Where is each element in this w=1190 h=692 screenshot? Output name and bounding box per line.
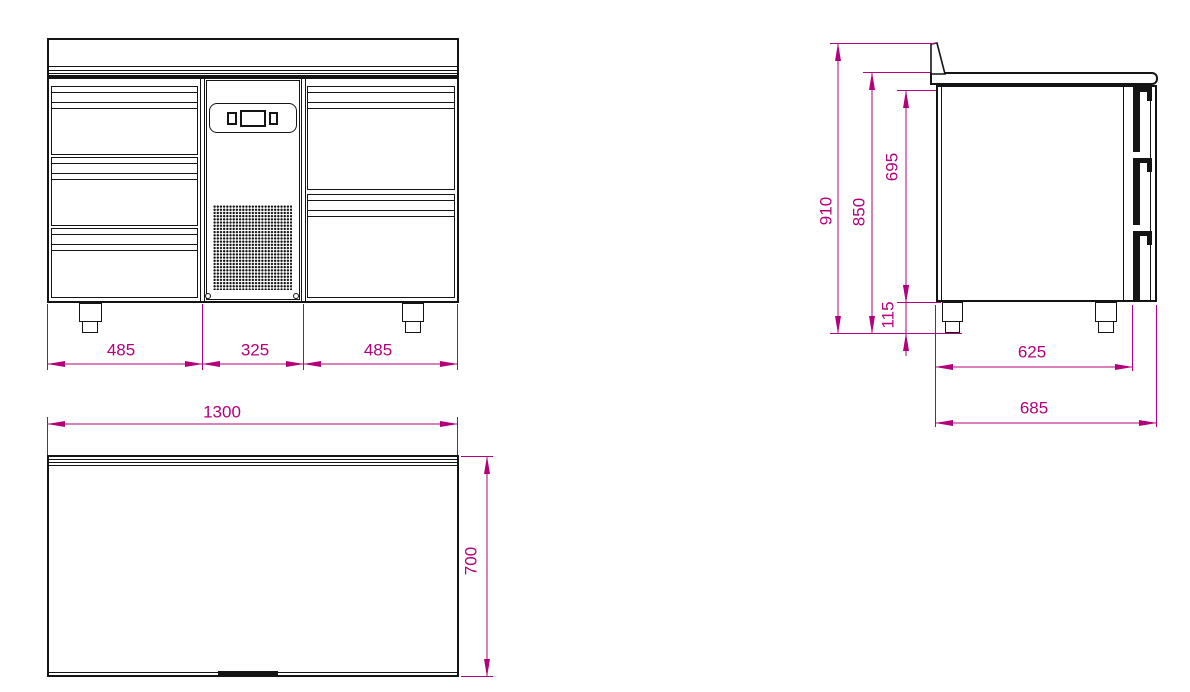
leg xyxy=(942,302,963,322)
dimension-label-total-height: 910 xyxy=(818,197,835,225)
side-upstand xyxy=(931,43,945,74)
drawer-handle xyxy=(52,235,197,245)
side-front-frame-line xyxy=(1150,87,1151,300)
control-button-right xyxy=(269,112,278,125)
handle-hook-icon xyxy=(1147,236,1152,245)
side-drawer-front xyxy=(1133,231,1140,300)
leg xyxy=(402,303,424,322)
column-divider xyxy=(200,79,201,301)
side-worktop xyxy=(930,72,1158,85)
front-worktop-edge-line xyxy=(49,70,457,71)
technical-drawing-canvas: 485 325 485 1300 700 910 850 695 115 625… xyxy=(0,0,1190,692)
front-worktop-edge-line xyxy=(49,73,457,74)
leg-foot xyxy=(82,321,98,333)
drawer-handle xyxy=(52,245,197,251)
dimension-label-middle-section: 325 xyxy=(241,342,269,359)
front-worktop-edge-line xyxy=(49,66,457,67)
leg xyxy=(1095,302,1117,322)
control-display xyxy=(240,110,266,127)
dimension-label-leg-height: 115 xyxy=(880,301,897,328)
screw-icon xyxy=(293,293,299,299)
drawer-front xyxy=(307,86,455,190)
dimension-label-total-depth-plan: 700 xyxy=(463,547,480,575)
handle-hook-icon xyxy=(1147,92,1152,101)
drawer-front xyxy=(51,86,198,155)
screw-icon xyxy=(205,293,211,299)
column-divider xyxy=(301,79,302,301)
leg-foot xyxy=(1098,321,1114,333)
drawer-handle xyxy=(308,93,454,103)
handle-hook-icon xyxy=(1147,163,1152,172)
side-drawer-front xyxy=(1133,158,1140,225)
control-button-left xyxy=(227,112,237,125)
dimension-label-drawer-section-height: 695 xyxy=(884,153,901,181)
drawer-handle xyxy=(52,93,197,103)
drawer-front xyxy=(51,157,198,226)
dimension-label-left-section: 485 xyxy=(107,342,135,359)
plan-outline xyxy=(47,455,459,677)
plan-rear-edge-line xyxy=(49,465,457,466)
plan-control-panel-mark xyxy=(218,671,278,676)
dimension-label-worktop-height: 850 xyxy=(851,198,868,226)
dimension-label-body-depth: 625 xyxy=(1018,344,1046,361)
leg-foot xyxy=(945,321,960,333)
drawer-handle xyxy=(52,164,197,174)
plan-rear-edge-line xyxy=(49,459,457,460)
side-rear-panel-line xyxy=(941,87,942,300)
side-front-frame-line xyxy=(1123,87,1124,300)
ventilation-grille xyxy=(213,205,292,290)
drawer-handle xyxy=(52,103,197,109)
drawer-handle xyxy=(308,211,454,217)
dimension-label-total-width: 1300 xyxy=(203,404,241,421)
plan-rear-edge-line xyxy=(49,462,457,463)
drawer-front xyxy=(307,194,455,298)
drawer-handle xyxy=(52,174,197,180)
drawer-handle xyxy=(308,103,454,109)
column-divider xyxy=(305,79,306,301)
dimension-label-total-depth-side: 685 xyxy=(1020,400,1048,417)
leg xyxy=(79,303,102,322)
drawer-front xyxy=(51,228,198,298)
side-drawer-front xyxy=(1133,87,1140,152)
column-divider xyxy=(204,79,205,301)
front-worktop xyxy=(47,38,459,77)
dimension-label-right-section: 485 xyxy=(364,342,392,359)
leg-foot xyxy=(405,321,421,333)
drawer-handle xyxy=(308,201,454,211)
